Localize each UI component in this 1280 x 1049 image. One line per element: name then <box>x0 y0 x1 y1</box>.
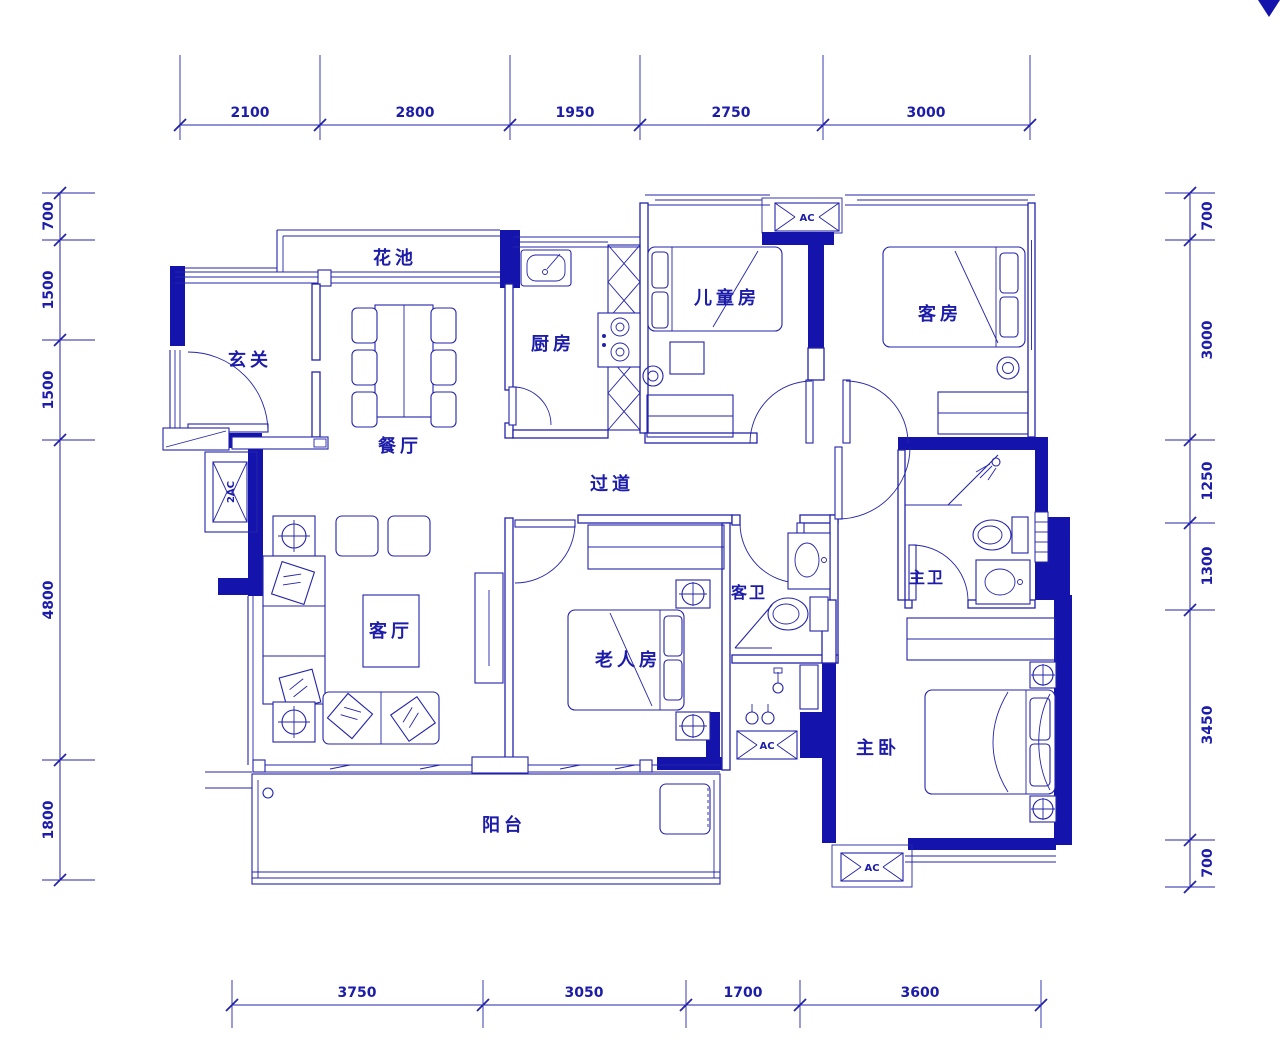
room-label-guest-bath: 客卫 <box>731 583 767 602</box>
dim-left-2: 1500 <box>41 270 57 309</box>
dimension-right: 700 3000 1250 1300 3450 700 <box>1165 187 1216 893</box>
room-label-master-bath: 主卫 <box>909 568 945 587</box>
room-label-foyer: 玄关 <box>228 349 272 371</box>
ac-platform-middle: AC <box>737 704 797 759</box>
dim-left-4: 4800 <box>41 580 57 619</box>
room-master-bath: 主卫 <box>905 455 1048 604</box>
dim-bottom-3: 1700 <box>724 985 763 1001</box>
dim-right-5: 3450 <box>1200 705 1216 744</box>
north-arrow-icon <box>1258 0 1280 17</box>
floor-plan-page: 2100 2800 1950 2750 3000 3750 3050 1700 … <box>0 0 1280 1049</box>
dim-right-1: 700 <box>1200 201 1216 230</box>
dimension-left: 700 1500 1500 4800 1800 <box>41 187 95 886</box>
dim-bottom-4: 3600 <box>901 985 940 1001</box>
ac-label-left: 2AC <box>226 481 237 503</box>
room-label-balcony: 阳台 <box>482 814 526 836</box>
dim-left-3: 1500 <box>41 370 57 409</box>
room-balcony: 阳台 <box>205 757 720 884</box>
washing-machine <box>660 784 710 834</box>
master-bath-toilet <box>1012 517 1028 553</box>
kitchen-stove <box>598 313 640 367</box>
room-kids: 儿童房 <box>643 247 782 437</box>
dim-top-4: 2750 <box>712 105 751 121</box>
guest-bath-sink <box>788 533 830 589</box>
dim-right-6: 700 <box>1200 848 1216 877</box>
room-label-flower-bed: 花池 <box>373 247 417 269</box>
dim-right-3: 1250 <box>1200 461 1216 500</box>
room-label-corridor: 过道 <box>590 473 634 495</box>
dimension-top: 2100 2800 1950 2750 3000 <box>174 55 1036 140</box>
dim-left-1: 700 <box>41 201 57 230</box>
dim-top-5: 3000 <box>907 105 946 121</box>
room-label-guest: 客房 <box>918 303 962 325</box>
room-master-bed: 主卧 <box>856 618 1056 822</box>
master-bath-sink <box>976 560 1030 604</box>
room-elder: 老人房 <box>568 525 724 740</box>
room-label-elder: 老人房 <box>595 649 661 671</box>
room-kitchen: 厨房 <box>521 245 640 430</box>
room-label-dining: 餐厅 <box>377 435 422 457</box>
dim-top-1: 2100 <box>231 105 270 121</box>
ac-label-bottom: AC <box>864 863 879 874</box>
dim-top-2: 2800 <box>396 105 435 121</box>
dim-bottom-1: 3750 <box>338 985 377 1001</box>
ac-label-top: AC <box>799 213 814 224</box>
dim-left-5: 1800 <box>41 800 57 839</box>
kids-desk <box>670 342 704 374</box>
room-label-master-bed: 主卧 <box>856 737 900 759</box>
room-guest: 客房 <box>883 247 1028 434</box>
floor-plan-drawing: 2100 2800 1950 2750 3000 3750 3050 1700 … <box>0 0 1280 1049</box>
ac-platform-top: AC <box>775 203 839 231</box>
room-guest-bath: 客卫 <box>731 533 830 709</box>
room-dining: 餐厅 <box>352 305 456 457</box>
room-label-living: 客厅 <box>369 620 413 642</box>
dim-top-3: 1950 <box>556 105 595 121</box>
dim-right-4: 1300 <box>1200 546 1216 585</box>
ac-label-middle: AC <box>759 741 774 752</box>
ac-platform-bottom: AC <box>832 845 912 887</box>
room-living: 客厅 <box>263 516 503 744</box>
room-label-kitchen: 厨房 <box>531 333 575 355</box>
dim-bottom-2: 3050 <box>565 985 604 1001</box>
room-label-kids: 儿童房 <box>693 287 760 309</box>
dim-right-2: 3000 <box>1200 320 1216 359</box>
dimension-bottom: 3750 3050 1700 3600 <box>226 980 1047 1028</box>
guest-bath-toilet <box>810 597 828 631</box>
